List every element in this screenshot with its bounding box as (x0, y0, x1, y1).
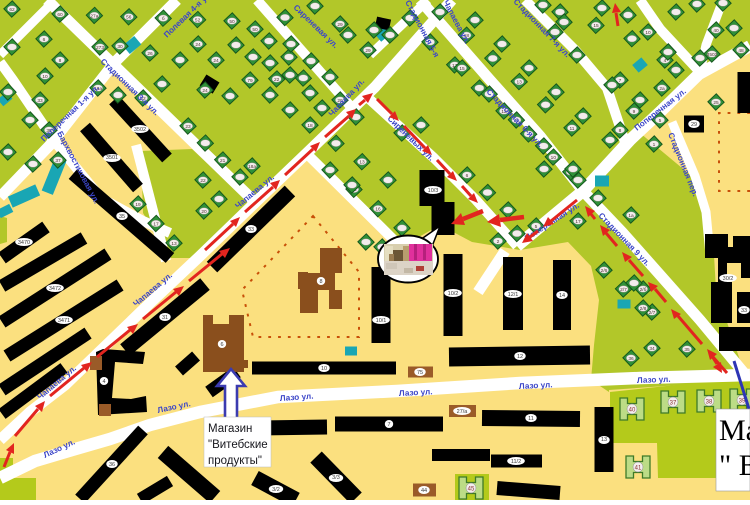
svg-text:45: 45 (468, 486, 475, 492)
svg-text:75: 75 (417, 370, 423, 376)
svg-text:29: 29 (691, 122, 697, 128)
svg-text:1: 1 (653, 142, 656, 148)
svg-text:3502: 3502 (134, 127, 146, 133)
svg-text:22: 22 (200, 178, 206, 184)
svg-text:33: 33 (248, 227, 254, 233)
svg-text:4: 4 (102, 379, 105, 385)
svg-text:79: 79 (247, 78, 253, 84)
svg-text:2/7: 2/7 (620, 287, 627, 293)
svg-text:10: 10 (42, 74, 48, 80)
svg-text:2/6: 2/6 (601, 268, 608, 274)
svg-text:35: 35 (684, 347, 690, 353)
svg-text:25: 25 (713, 100, 719, 106)
svg-text:3501: 3501 (106, 155, 118, 161)
svg-text:27/а: 27/а (457, 409, 469, 415)
svg-text:10/2: 10/2 (448, 291, 459, 297)
svg-text:29: 29 (337, 22, 343, 28)
svg-text:Лазо ул.: Лазо ул. (399, 387, 433, 398)
svg-text:27а: 27а (90, 13, 98, 19)
svg-text:36: 36 (109, 462, 115, 468)
svg-text:22: 22 (274, 77, 280, 83)
svg-text:40: 40 (629, 407, 636, 413)
svg-text:33: 33 (37, 98, 43, 104)
svg-text:7: 7 (387, 422, 390, 428)
svg-text:11: 11 (528, 416, 534, 422)
svg-text:" В: " В (719, 449, 750, 482)
svg-text:15: 15 (459, 66, 465, 72)
svg-text:17: 17 (153, 221, 159, 227)
svg-text:б: б (162, 16, 165, 22)
svg-text:50: 50 (252, 27, 258, 33)
svg-text:3471: 3471 (58, 318, 70, 324)
svg-text:10: 10 (551, 155, 557, 161)
svg-text:38: 38 (706, 399, 713, 405)
svg-text:3472: 3472 (49, 286, 61, 292)
svg-text:"Витебские: "Витебские (208, 439, 268, 451)
svg-text:273: 273 (96, 45, 104, 51)
svg-text:18а: 18а (248, 164, 256, 170)
svg-text:29: 29 (365, 48, 371, 54)
svg-text:35: 35 (119, 214, 125, 220)
svg-text:21: 21 (220, 158, 226, 164)
svg-text:23: 23 (185, 124, 191, 130)
svg-text:2: 2 (497, 239, 500, 245)
svg-text:16: 16 (375, 207, 381, 213)
svg-text:40: 40 (713, 28, 719, 34)
svg-text:37: 37 (670, 400, 677, 406)
svg-text:24: 24 (202, 88, 208, 94)
svg-text:2/7: 2/7 (649, 310, 656, 316)
svg-text:48: 48 (738, 48, 744, 54)
svg-text:Лазо ул.: Лазо ул. (637, 375, 671, 385)
svg-text:10: 10 (321, 366, 327, 372)
svg-text:6: 6 (466, 173, 469, 179)
svg-text:50: 50 (229, 19, 235, 25)
svg-text:3/2: 3/2 (272, 487, 280, 493)
svg-text:3502: 3502 (707, 52, 718, 58)
svg-text:13: 13 (171, 241, 177, 247)
svg-text:1а: 1а (628, 213, 634, 219)
svg-text:41: 41 (635, 465, 642, 471)
svg-text:2/б: 2/б (640, 287, 647, 293)
svg-text:30/2: 30/2 (723, 276, 734, 282)
svg-text:17: 17 (575, 219, 581, 225)
svg-text:33: 33 (741, 308, 747, 314)
svg-text:13: 13 (517, 80, 523, 86)
svg-text:3470: 3470 (18, 240, 30, 246)
svg-text:26: 26 (147, 51, 153, 57)
svg-text:34: 34 (649, 346, 655, 352)
svg-text:2/8: 2/8 (640, 306, 647, 312)
svg-text:8: 8 (319, 279, 322, 285)
svg-text:9: 9 (633, 109, 636, 115)
svg-text:19: 19 (135, 202, 141, 208)
svg-text:6: 6 (220, 342, 223, 348)
svg-text:31: 31 (162, 315, 168, 321)
svg-text:56: 56 (126, 15, 132, 21)
svg-text:62: 62 (9, 7, 15, 13)
svg-text:10: 10 (645, 30, 651, 36)
svg-text:24: 24 (213, 58, 219, 64)
svg-text:3/3: 3/3 (332, 475, 340, 481)
svg-text:Ма: Ма (719, 414, 750, 447)
svg-text:Лазо ул.: Лазо ул. (519, 380, 553, 391)
svg-text:52: 52 (195, 18, 201, 24)
svg-text:продукты": продукты" (208, 455, 262, 467)
svg-text:14: 14 (559, 293, 565, 299)
svg-text:60: 60 (57, 12, 63, 18)
svg-text:13: 13 (359, 160, 365, 166)
svg-text:11: 11 (570, 126, 575, 132)
svg-text:6: 6 (43, 37, 46, 43)
svg-text:44: 44 (421, 488, 427, 494)
svg-text:8: 8 (59, 58, 62, 64)
svg-text:10/1: 10/1 (376, 318, 387, 324)
svg-text:18: 18 (307, 123, 313, 129)
svg-text:36: 36 (628, 356, 634, 362)
svg-text:20: 20 (201, 209, 207, 215)
svg-text:13: 13 (601, 437, 607, 443)
svg-text:24: 24 (195, 42, 201, 48)
svg-text:30: 30 (117, 44, 123, 50)
svg-text:12/1: 12/1 (508, 292, 519, 298)
svg-text:37: 37 (55, 158, 61, 164)
svg-text:7: 7 (619, 78, 622, 84)
svg-text:12: 12 (517, 354, 523, 360)
svg-text:5: 5 (659, 118, 662, 124)
svg-text:10/3: 10/3 (428, 188, 439, 194)
svg-text:2а: 2а (659, 86, 665, 92)
svg-text:8: 8 (619, 128, 622, 134)
svg-text:Магазин: Магазин (208, 423, 252, 435)
svg-text:15: 15 (593, 23, 599, 29)
svg-text:11/2: 11/2 (511, 459, 521, 465)
